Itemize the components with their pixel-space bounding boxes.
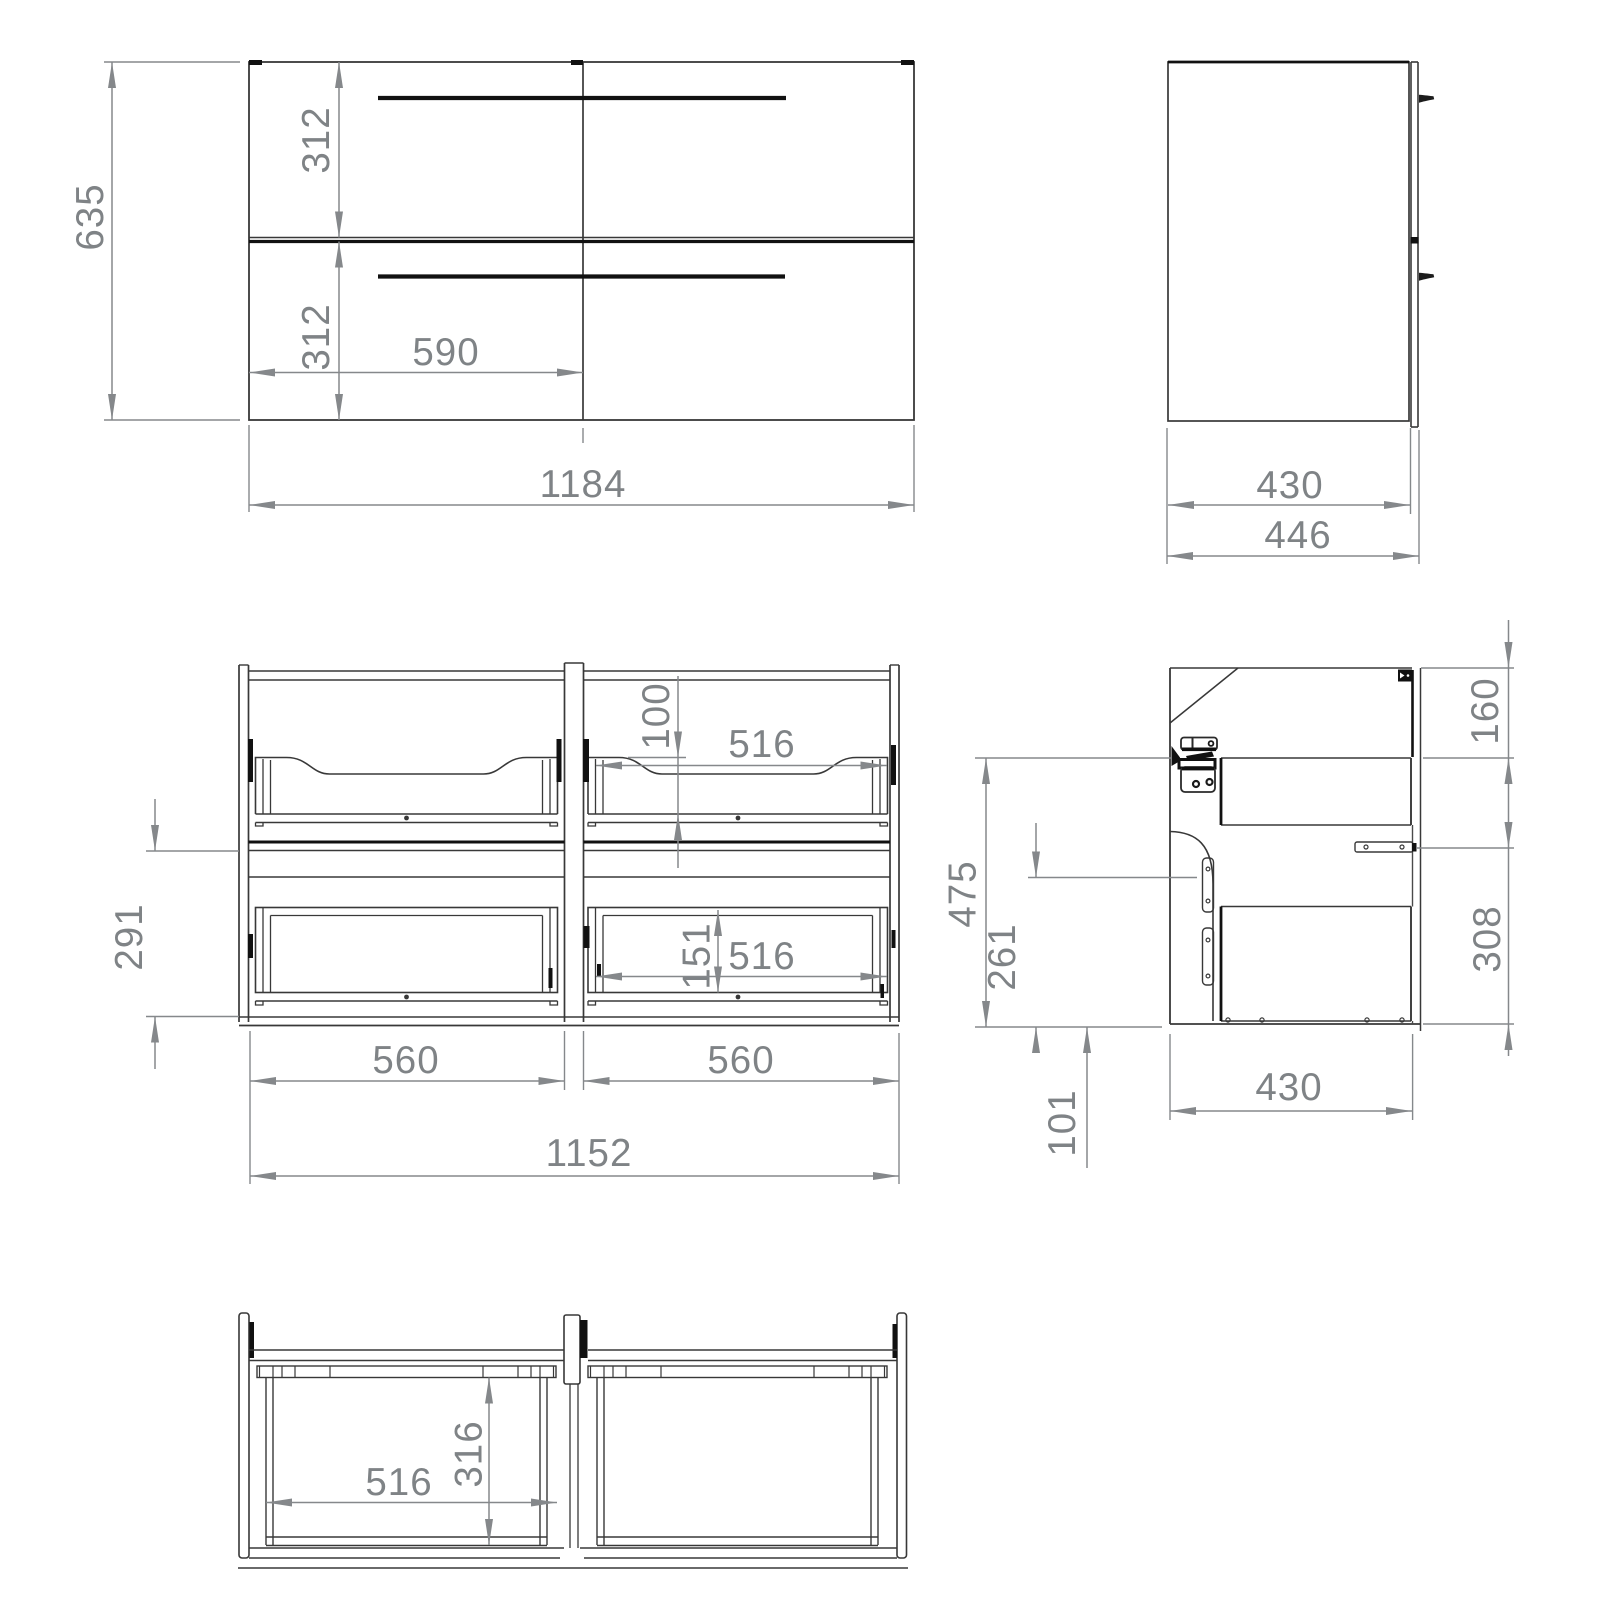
svg-text:446: 446	[1264, 514, 1331, 557]
svg-text:430: 430	[1255, 1066, 1322, 1109]
svg-text:101: 101	[1041, 1089, 1084, 1156]
svg-text:1152: 1152	[546, 1132, 633, 1175]
svg-text:1184: 1184	[540, 463, 627, 506]
svg-text:560: 560	[372, 1039, 439, 1082]
svg-text:516: 516	[728, 723, 795, 766]
svg-text:560: 560	[707, 1039, 774, 1082]
svg-text:316: 316	[447, 1420, 490, 1487]
svg-text:312: 312	[295, 106, 338, 173]
svg-text:312: 312	[295, 303, 338, 370]
svg-text:635: 635	[69, 183, 112, 250]
svg-text:308: 308	[1466, 905, 1509, 972]
svg-text:160: 160	[1464, 677, 1507, 744]
svg-text:475: 475	[941, 860, 984, 927]
svg-text:516: 516	[728, 935, 795, 978]
svg-text:516: 516	[365, 1461, 432, 1504]
svg-text:261: 261	[981, 923, 1024, 990]
svg-text:151: 151	[675, 922, 718, 989]
svg-text:100: 100	[635, 682, 678, 749]
svg-text:291: 291	[108, 903, 151, 970]
svg-text:430: 430	[1256, 464, 1323, 507]
svg-text:590: 590	[412, 331, 479, 374]
